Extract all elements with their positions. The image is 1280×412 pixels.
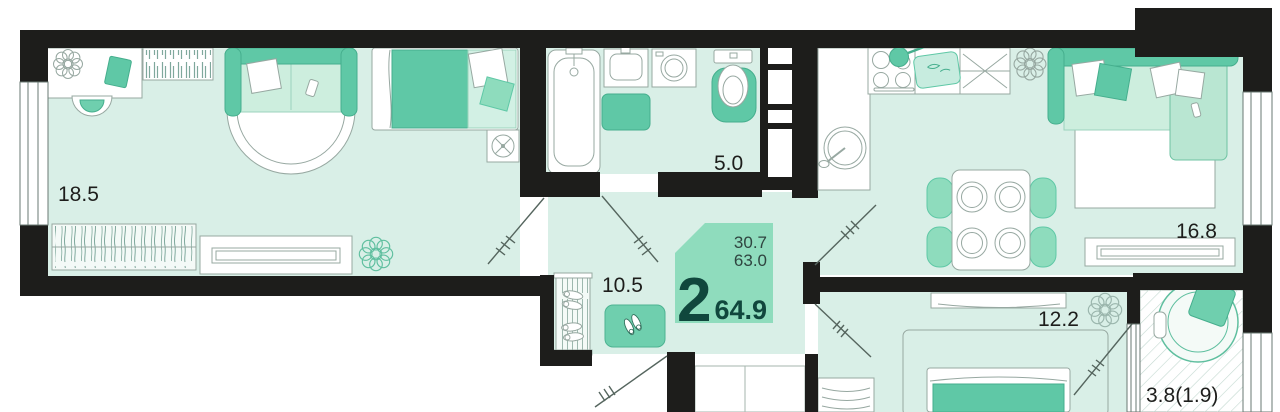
badge-living-area: 30.7	[734, 233, 767, 252]
bathtub	[548, 48, 600, 174]
tv-stand	[200, 236, 352, 274]
sink	[604, 47, 648, 87]
hall-wardrobe	[818, 378, 874, 412]
wardrobe-rack	[52, 224, 196, 270]
floor-plan-drawing: 30.7 63.0 2 64.9 18.5 5.0 10.5 16.8 12.2…	[0, 0, 1280, 412]
nightstand-fan	[487, 130, 519, 162]
shoe-mat	[605, 305, 665, 347]
double-bed	[372, 48, 518, 130]
badge-area-no-balcony: 63.0	[734, 251, 767, 270]
desk	[47, 48, 142, 98]
area-badge: 30.7 63.0 2 64.9	[675, 223, 773, 335]
room-label-hallway: 10.5	[602, 274, 643, 297]
badge-total-area: 64.9	[714, 295, 767, 325]
bath-mat	[602, 94, 650, 130]
window-balcony	[1127, 324, 1140, 412]
toilet	[712, 50, 756, 122]
window-right-bottom	[1243, 333, 1272, 412]
room-label-bathroom: 5.0	[714, 152, 743, 175]
floor-plan: 30.7 63.0 2 64.9 18.5 5.0 10.5 16.8 12.2…	[0, 0, 1280, 412]
room-label-living: 18.5	[58, 183, 99, 206]
window-right-top	[1243, 92, 1272, 225]
room-label-kitchen-living: 16.8	[1176, 220, 1217, 243]
door-swing-entrance	[595, 356, 667, 407]
window-left	[20, 82, 48, 225]
room-label-balcony: 3.8(1.9)	[1146, 384, 1218, 407]
sofa	[225, 48, 357, 116]
badge-rooms-count: 2	[677, 266, 711, 335]
vent-shaft	[760, 30, 818, 198]
washing-machine	[652, 49, 696, 87]
cutting-board	[913, 51, 961, 89]
room-label-bedroom: 12.2	[1038, 308, 1079, 331]
coat-rack	[554, 273, 592, 355]
bedroom-bed	[927, 368, 1070, 412]
bookshelf	[143, 48, 213, 80]
outside-room	[695, 366, 805, 412]
bedroom-tv-console	[931, 293, 1066, 308]
